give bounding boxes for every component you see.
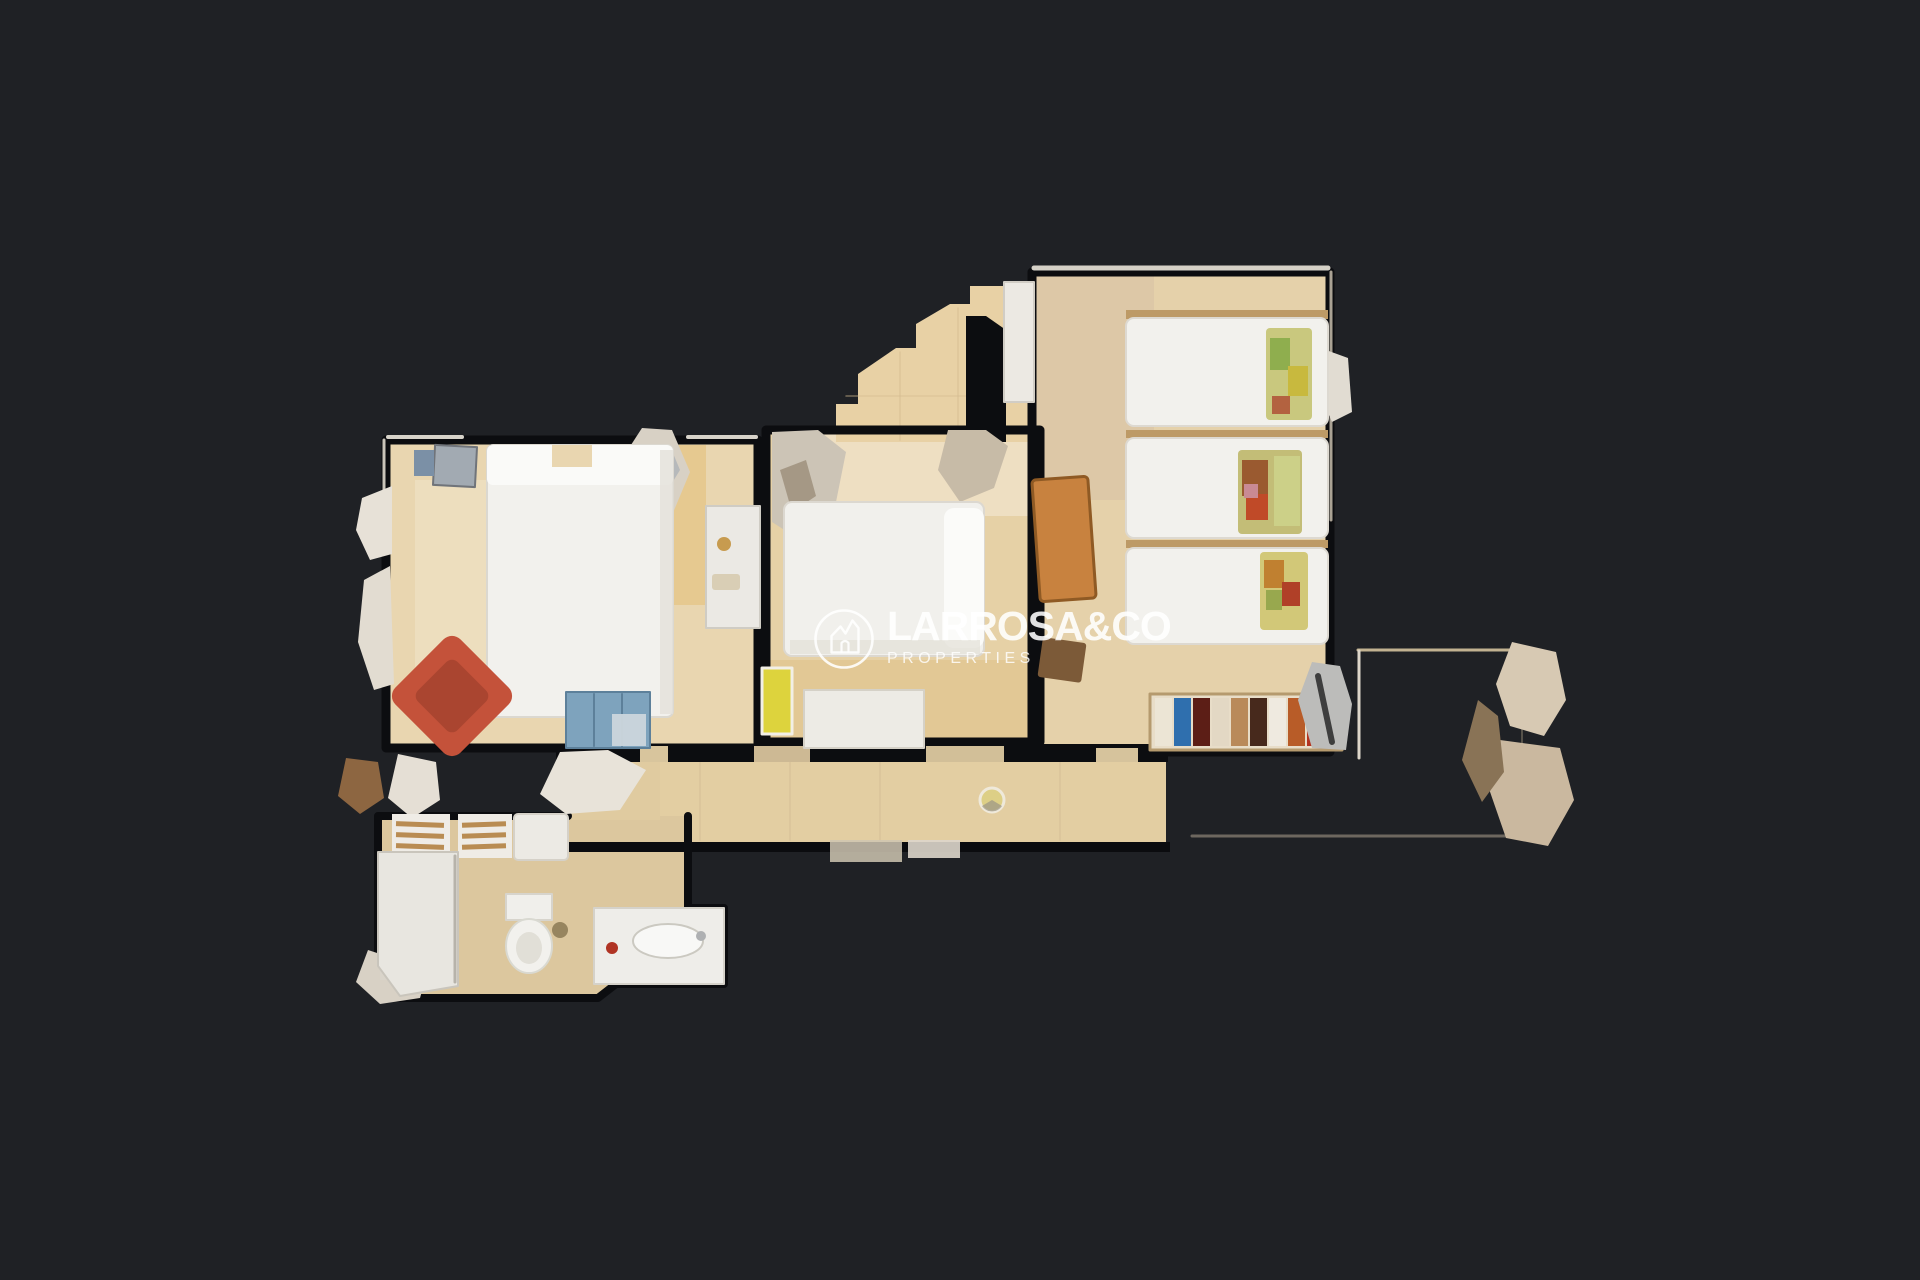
pillow-pattern-patch bbox=[1244, 484, 1258, 498]
pillow-pattern-patch bbox=[1288, 366, 1308, 396]
vanity-soap-red bbox=[606, 942, 618, 954]
dresser-tray bbox=[712, 574, 740, 590]
closet-clothes bbox=[1269, 698, 1286, 746]
mesh-artifact bbox=[388, 754, 440, 818]
yellow-item bbox=[762, 668, 792, 734]
closet-clothes bbox=[1193, 698, 1210, 746]
headboard-strip bbox=[1126, 430, 1328, 438]
shower-area bbox=[378, 852, 458, 996]
mesh-artifact bbox=[358, 566, 394, 690]
headboard-strip bbox=[1126, 540, 1328, 548]
pillow-pattern-patch bbox=[1274, 456, 1300, 526]
doorway-threshold bbox=[926, 746, 1004, 762]
vanity-faucet bbox=[696, 931, 706, 941]
doorway-threshold bbox=[1096, 748, 1138, 762]
pillow-pattern-patch bbox=[1270, 338, 1290, 370]
dresser-gold-item bbox=[717, 537, 731, 551]
bench-cushion bbox=[612, 714, 646, 746]
double-bed-pillow bbox=[944, 508, 984, 648]
mesh-artifact bbox=[356, 486, 392, 560]
double-bed-shade bbox=[790, 640, 980, 654]
doorway-threshold bbox=[754, 746, 810, 762]
mesh-artifact-brown bbox=[338, 758, 384, 814]
bathroom-door-leaf bbox=[514, 814, 568, 860]
closet-clothes bbox=[1174, 698, 1191, 746]
closet-clothes bbox=[1250, 698, 1267, 746]
closet-clothes bbox=[1155, 698, 1172, 746]
pillow-pattern-patch bbox=[1272, 396, 1290, 414]
toilet-tank bbox=[506, 894, 552, 920]
pillow-pattern-patch bbox=[1282, 582, 1300, 606]
pillow-pattern-patch bbox=[1264, 560, 1284, 588]
bench-white bbox=[804, 690, 924, 748]
double-bed bbox=[487, 445, 673, 717]
double-bed-shade bbox=[660, 450, 673, 714]
closet-clothes bbox=[1212, 698, 1229, 746]
floor-drain bbox=[552, 922, 568, 938]
hallway-south-patch bbox=[908, 840, 960, 858]
entrance-doorway-shadow bbox=[966, 316, 1006, 442]
hallway-south-patch bbox=[830, 840, 902, 862]
curtain-artifact bbox=[1496, 642, 1566, 736]
floorplan-region: LARROSA&CO PROPERTIES bbox=[0, 0, 1920, 1280]
toilet-bowl-inner bbox=[516, 932, 542, 964]
closet-clothes bbox=[1231, 698, 1248, 746]
cabinet-orange bbox=[1032, 476, 1096, 602]
entrance-door-white bbox=[1004, 282, 1034, 402]
double-bed-headboard-notch bbox=[552, 445, 592, 467]
nightstand-blue-item bbox=[414, 450, 434, 476]
pillow-pattern-patch bbox=[1266, 590, 1282, 610]
box-brown bbox=[1037, 637, 1086, 683]
vanity-sink bbox=[633, 924, 703, 958]
nightstand-gray bbox=[433, 445, 477, 487]
floorplan-image bbox=[0, 0, 1920, 1280]
dresser bbox=[706, 506, 760, 628]
